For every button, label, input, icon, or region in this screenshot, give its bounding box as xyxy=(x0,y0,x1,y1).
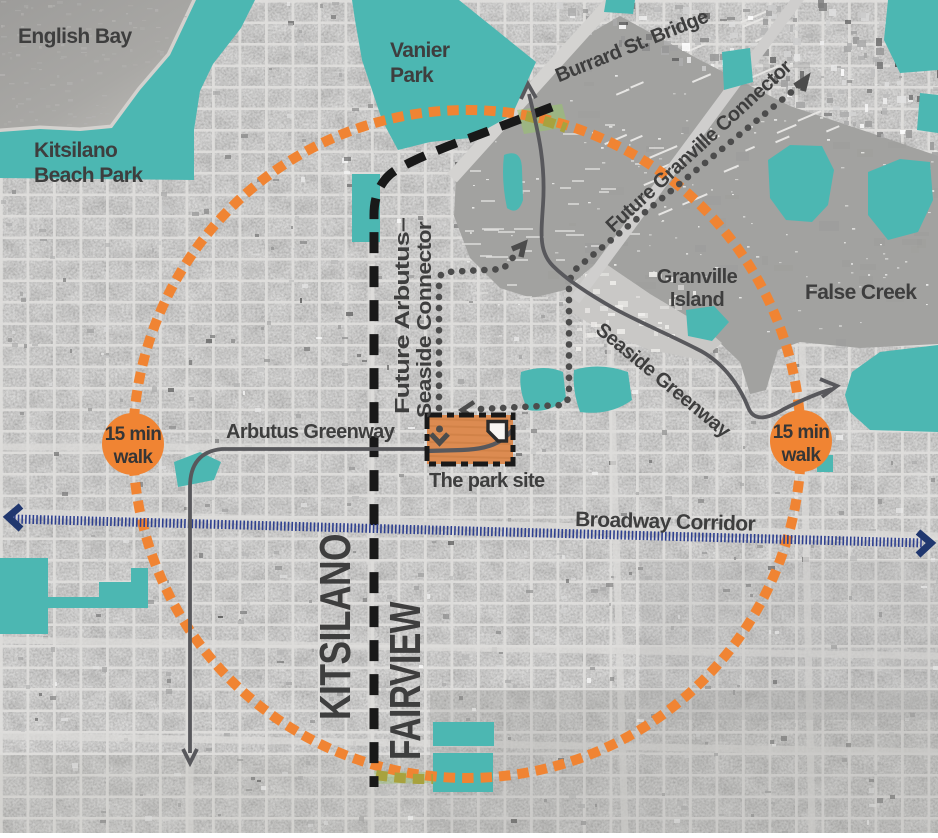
svg-text:False Creek: False Creek xyxy=(805,281,917,304)
svg-text:Broadway Corridor: Broadway Corridor xyxy=(575,508,756,536)
svg-text:The park site: The park site xyxy=(429,470,545,492)
svg-text:Seaside Connector: Seaside Connector xyxy=(414,221,436,418)
svg-text:KITSILANO: KITSILANO xyxy=(311,534,360,720)
svg-text:Arbutus Greenway: Arbutus Greenway xyxy=(226,421,396,443)
svg-text:Kitsilano: Kitsilano xyxy=(34,139,117,162)
svg-text:15 min: 15 min xyxy=(105,424,162,445)
svg-text:Vanier: Vanier xyxy=(390,39,450,62)
svg-text:English Bay: English Bay xyxy=(18,25,133,48)
svg-text:15 min: 15 min xyxy=(773,422,830,443)
svg-text:Future Arbutus–: Future Arbutus– xyxy=(392,217,414,414)
svg-text:Granville: Granville xyxy=(657,266,738,288)
svg-text:walk: walk xyxy=(113,447,154,468)
svg-text:Park: Park xyxy=(390,64,434,87)
svg-text:Beach Park: Beach Park xyxy=(34,164,143,187)
svg-text:FAIRVIEW: FAIRVIEW xyxy=(381,601,430,760)
svg-text:Island: Island xyxy=(670,289,724,311)
svg-text:walk: walk xyxy=(781,445,822,466)
